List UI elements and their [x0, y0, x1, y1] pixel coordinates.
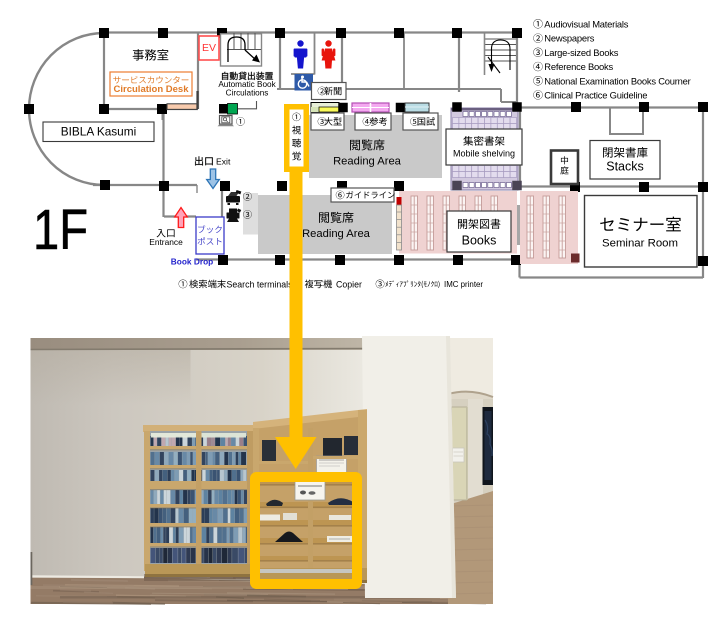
- svg-text:Circulations: Circulations: [226, 88, 269, 97]
- svg-text:Clinical Practice Guideline: Clinical Practice Guideline: [544, 90, 647, 101]
- svg-text:Newspapers: Newspapers: [544, 33, 594, 44]
- svg-text:Reading Area: Reading Area: [333, 156, 402, 168]
- svg-text:1F: 1F: [33, 198, 88, 262]
- svg-text:IMC printer: IMC printer: [444, 280, 483, 289]
- svg-text:Copier: Copier: [336, 280, 362, 290]
- svg-text:Entrance: Entrance: [149, 237, 183, 247]
- svg-text:Stacks: Stacks: [606, 160, 644, 174]
- svg-text:Seminar Room: Seminar Room: [602, 238, 678, 250]
- svg-text:Audiovisual Materials: Audiovisual Materials: [544, 19, 628, 30]
- svg-text:Mobile shelving: Mobile shelving: [453, 149, 515, 159]
- svg-text:Books: Books: [462, 234, 497, 248]
- svg-text:Book Drop: Book Drop: [171, 257, 213, 267]
- svg-text:Search terminals: Search terminals: [227, 280, 294, 290]
- svg-text:National Examination Books Cou: National Examination Books Courner: [544, 75, 690, 86]
- svg-text:Large-sized Books: Large-sized Books: [544, 47, 618, 58]
- svg-text:BIBLA Kasumi: BIBLA Kasumi: [61, 125, 136, 139]
- svg-text:Circulation Desk: Circulation Desk: [114, 84, 190, 95]
- svg-text:EV: EV: [202, 42, 216, 54]
- svg-text:Reading Area: Reading Area: [302, 228, 371, 240]
- svg-text:Reference Books: Reference Books: [544, 61, 613, 72]
- svg-text:Exit: Exit: [216, 157, 231, 167]
